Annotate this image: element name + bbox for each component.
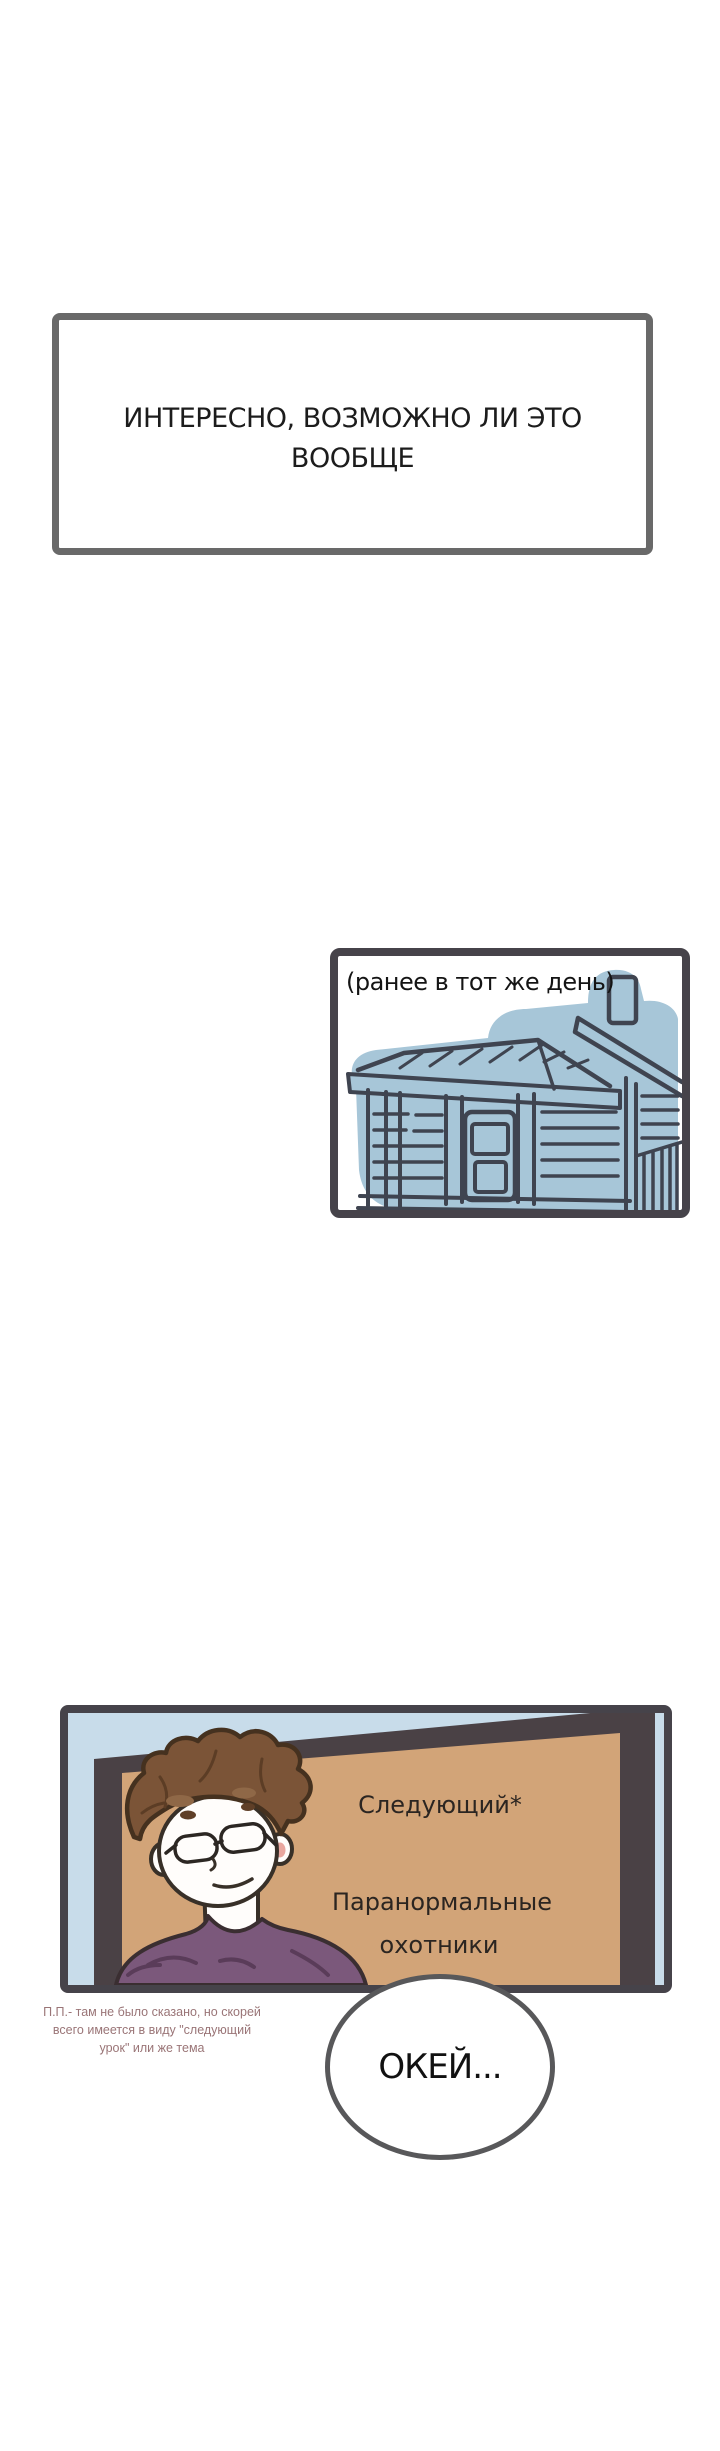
hair-highlight-right [232, 1788, 256, 1799]
hair-shadow-right [241, 1803, 255, 1811]
thought-text: ИНТЕРЕСНО, ВОЗМОЖНО ЛИ ЭТО ВООБЩЕ [123, 389, 582, 479]
note-line-3: урок" или же тема [4, 2039, 300, 2057]
hair-highlight-left [166, 1795, 194, 1807]
thought-line-2: ВООБЩЕ [123, 439, 582, 479]
panel-flashback: (ранее в тот же день) [330, 948, 690, 1218]
hair-shadow-left [180, 1811, 196, 1820]
thought-line-1: ИНТЕРЕСНО, ВОЗМОЖНО ЛИ ЭТО [123, 399, 582, 439]
tv-scene-illustration: Следующий* Паранормальные охотники [68, 1713, 664, 1985]
panel-tv-scene: Следующий* Паранормальные охотники [60, 1705, 672, 1993]
speech-bubble: ОКЕЙ... [325, 1974, 555, 2160]
note-line-1: П.П.- там не было сказано, но скорей [4, 2003, 300, 2021]
speech-bubble-text: ОКЕЙ... [378, 2047, 501, 2087]
board-line-1: Следующий* [358, 1791, 522, 1819]
comic-page: ИНТЕРЕСНО, ВОЗМОЖНО ЛИ ЭТО ВООБЩЕ [0, 0, 720, 2451]
panel-thought-box: ИНТЕРЕСНО, ВОЗМОЖНО ЛИ ЭТО ВООБЩЕ [52, 313, 653, 555]
translator-note: П.П.- там не было сказано, но скорей все… [4, 2003, 300, 2057]
board-line-3: охотники [380, 1931, 499, 1959]
flashback-caption: (ранее в тот же день) [346, 968, 614, 996]
board-line-2: Паранормальные [332, 1888, 552, 1916]
note-line-2: всего имеется в виду "следующий [4, 2021, 300, 2039]
